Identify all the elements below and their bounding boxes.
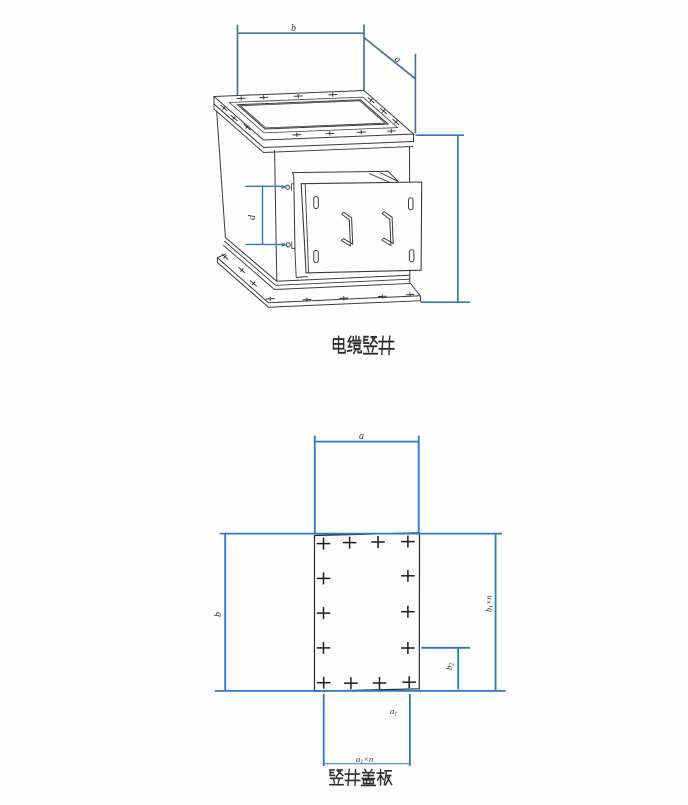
svg-text:a1×n: a1×n bbox=[356, 754, 373, 766]
svg-text:b1×n: b1×n bbox=[485, 596, 496, 612]
svg-text:b: b bbox=[213, 612, 224, 617]
svg-text:b: b bbox=[291, 23, 296, 34]
svg-text:a: a bbox=[359, 431, 364, 442]
